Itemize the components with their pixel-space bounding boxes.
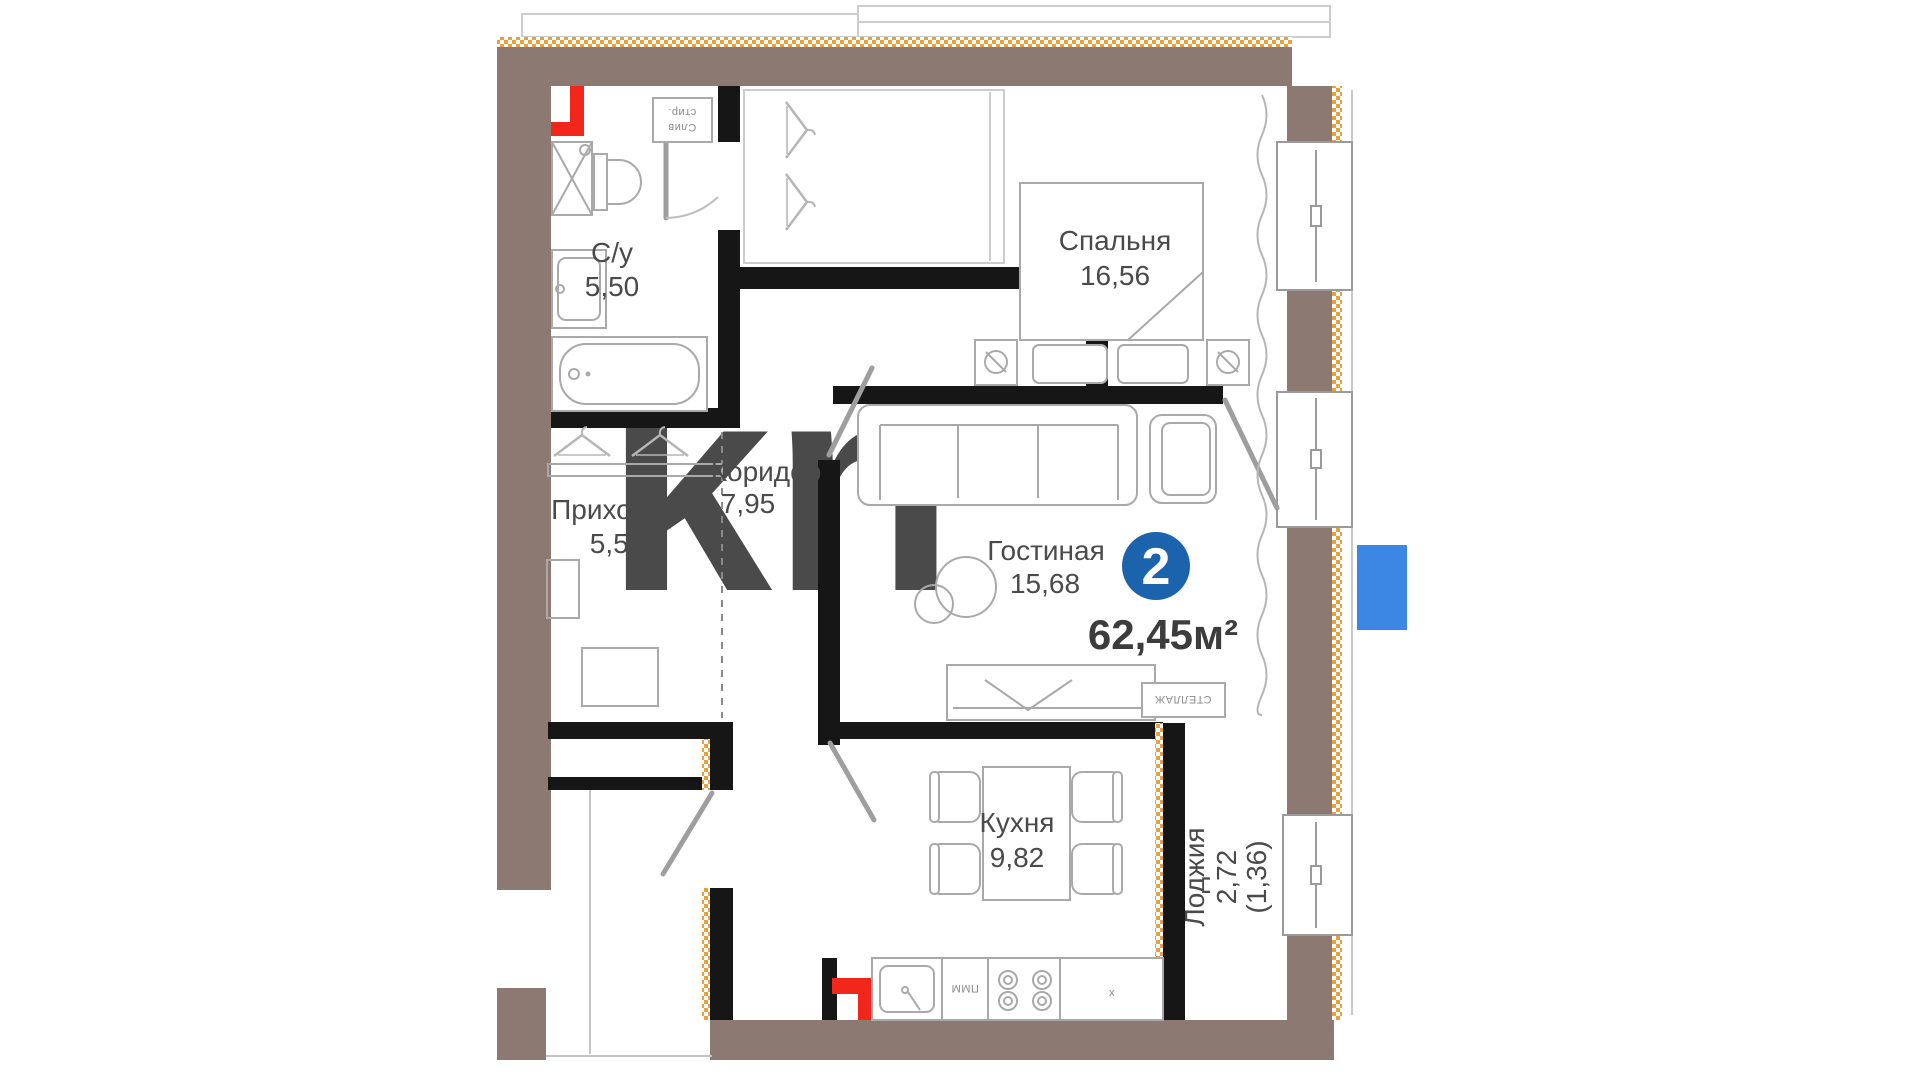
room-label-hallway: Прихожая	[551, 494, 681, 525]
hallway-bench	[582, 648, 658, 706]
door-bedroom	[1225, 400, 1277, 508]
sofa	[858, 405, 1137, 505]
room-area-living: 15,68	[1010, 568, 1080, 599]
svg-text:ПММ: ПММ	[951, 982, 979, 994]
room-area-bedroom: 16,56	[1080, 260, 1150, 291]
floor-plan-svg: kn	[0, 0, 1920, 1080]
door-entrance	[663, 793, 712, 874]
svg-text:СТЕЛЛАЖ: СТЕЛЛАЖ	[1154, 693, 1211, 705]
hallway-cabinet	[547, 560, 579, 618]
svg-text:Слив: Слив	[668, 121, 696, 133]
wardrobe-top	[744, 90, 1004, 263]
neighbor-outline	[522, 6, 1330, 37]
kitchen-furniture: ПММ x	[872, 767, 1163, 1020]
total-area-label: 62,45м²	[1088, 611, 1238, 658]
svg-text:стир.: стир.	[668, 106, 696, 118]
room-label-corridor: Коридор	[711, 456, 822, 487]
window-living	[1277, 392, 1352, 527]
nightstand-left	[975, 340, 1017, 385]
svg-text:2: 2	[1142, 538, 1171, 596]
door-kitchen	[830, 743, 874, 820]
room-label-bathroom: С/у	[591, 237, 633, 268]
svg-text:Лоджия: Лоджия	[1179, 827, 1210, 926]
position-marker[interactable]	[1357, 545, 1407, 630]
toilet	[594, 154, 641, 210]
window-bedroom	[1277, 142, 1352, 290]
room-label-kitchen: Кухня	[980, 807, 1055, 838]
room-area-hallway: 5,58	[590, 528, 645, 559]
pipe-riser-kitchen	[832, 978, 874, 1020]
svg-text:(1,36): (1,36)	[1241, 840, 1272, 913]
window-loggia	[1283, 815, 1352, 935]
bathtub	[552, 337, 707, 411]
room-area-kitchen: 9,82	[990, 842, 1045, 873]
room-label-living: Гостиная	[987, 535, 1105, 566]
door-bathroom	[666, 142, 718, 218]
svg-text:x: x	[1109, 987, 1115, 999]
room-area-bathroom: 5,50	[585, 271, 640, 302]
washer-drain-note: Слив стир.	[653, 98, 712, 142]
kitchen-sink	[880, 966, 934, 1012]
washing-machine	[552, 142, 592, 215]
shelf-note: СТЕЛЛАЖ	[1142, 683, 1225, 717]
svg-text:2,72: 2,72	[1211, 850, 1242, 905]
tv-unit	[947, 665, 1155, 720]
room-count-badge: 2	[1122, 532, 1190, 600]
pipe-riser-bathroom	[551, 86, 584, 136]
kitchen-counter: ПММ x	[872, 958, 1163, 1020]
room-area-corridor: 7,95	[721, 488, 776, 519]
room-label-loggia: Лоджия 2,72 (1,36)	[1179, 827, 1272, 926]
curtain-line	[1258, 95, 1267, 715]
armchair	[1150, 415, 1216, 503]
room-label-bedroom: Спальня	[1059, 225, 1172, 256]
nightstand-right	[1207, 340, 1249, 385]
